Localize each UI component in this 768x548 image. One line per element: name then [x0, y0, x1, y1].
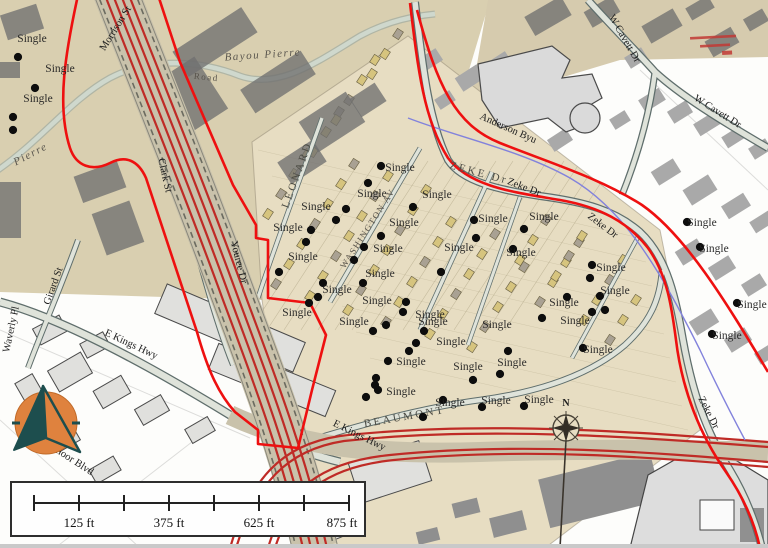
single-marker-dot — [302, 238, 310, 246]
single-marker-dot — [420, 327, 428, 335]
single-marker-dot — [364, 179, 372, 187]
single-marker-label: Single — [482, 319, 511, 331]
single-marker-label: Single — [596, 262, 625, 274]
single-marker-label: Single — [282, 307, 311, 319]
single-marker-dot — [504, 347, 512, 355]
single-marker-label: Single — [273, 222, 302, 234]
single-marker-label: Single — [17, 33, 46, 45]
single-marker-dot — [437, 268, 445, 276]
single-marker-dot — [359, 279, 367, 287]
single-marker-dot — [372, 374, 380, 382]
single-marker-dot — [305, 299, 313, 307]
single-marker-label: Single — [418, 316, 447, 328]
single-marker-dot — [405, 347, 413, 355]
single-marker-dot — [382, 321, 390, 329]
single-marker-label: Single — [737, 299, 766, 311]
building — [667, 100, 693, 124]
single-marker-label: Single — [560, 315, 589, 327]
single-marker-dot — [402, 298, 410, 306]
single-marker-dot — [371, 381, 379, 389]
single-marker-dot — [586, 274, 594, 282]
building — [609, 110, 631, 130]
single-marker-dot — [496, 370, 504, 378]
single-marker-dot — [384, 357, 392, 365]
single-marker-label: Single — [396, 356, 425, 368]
scale-label-625: 625 ft — [235, 515, 283, 531]
building — [683, 174, 718, 205]
scale-label-125: 125 ft — [55, 515, 103, 531]
single-marker-label: Single — [301, 201, 330, 213]
logo-compass-icon — [6, 378, 98, 470]
building — [0, 182, 21, 238]
page-edge — [0, 544, 768, 548]
single-marker-label: Single — [687, 217, 716, 229]
single-marker-label: Single — [322, 284, 351, 296]
single-marker-label: Single — [481, 395, 510, 407]
single-marker-label: Single — [453, 361, 482, 373]
single-marker-label: Single — [549, 297, 578, 309]
single-marker-dot — [360, 243, 368, 251]
single-marker-label: Single — [362, 295, 391, 307]
single-marker-label: Single — [339, 316, 368, 328]
single-marker-dot — [470, 216, 478, 224]
single-marker-dot — [419, 413, 427, 421]
building — [708, 255, 736, 280]
single-marker-dot — [601, 306, 609, 314]
single-marker-dot — [369, 327, 377, 335]
single-marker-dot — [377, 232, 385, 240]
single-marker-label: Single — [583, 344, 612, 356]
single-marker-dot — [538, 314, 546, 322]
building — [0, 62, 20, 78]
single-marker-label: Single — [435, 397, 464, 409]
single-marker-dot — [409, 203, 417, 211]
building — [93, 375, 131, 408]
building — [749, 211, 768, 234]
single-marker-dot — [520, 225, 528, 233]
compass-north-label: N — [562, 398, 570, 409]
single-marker-label: Single — [497, 357, 526, 369]
single-marker-dot — [314, 293, 322, 301]
single-marker-label: Single — [288, 251, 317, 263]
single-marker-dot — [307, 226, 315, 234]
building — [721, 193, 751, 219]
single-marker-label: Single — [524, 394, 553, 406]
single-marker-dot — [14, 53, 22, 61]
single-marker-dot — [332, 216, 340, 224]
scale-label-375: 375 ft — [145, 515, 193, 531]
single-marker-dot — [588, 308, 596, 316]
single-marker-label: Single — [422, 189, 451, 201]
scale-label-875: 875 ft — [318, 515, 366, 531]
single-marker-label: Single — [357, 188, 386, 200]
single-marker-dot — [588, 261, 596, 269]
single-marker-label: Single — [436, 336, 465, 348]
single-marker-label: Single — [506, 247, 535, 259]
single-marker-dot — [350, 256, 358, 264]
building — [741, 273, 767, 297]
street-label-waverly-pl: Waverly Pl — [1, 305, 21, 353]
single-marker-label: Single — [699, 243, 728, 255]
single-marker-dot — [472, 234, 480, 242]
single-marker-label: Single — [478, 213, 507, 225]
single-marker-dot — [9, 126, 17, 134]
building — [135, 395, 170, 426]
single-marker-label: Single — [373, 243, 402, 255]
scale-bar-ruler — [12, 485, 364, 515]
single-marker-label: Single — [45, 63, 74, 75]
single-marker-label: Single — [529, 211, 558, 223]
single-marker-label: Single — [386, 386, 415, 398]
single-marker-dot — [9, 113, 17, 121]
single-marker-dot — [377, 162, 385, 170]
single-marker-dot — [399, 308, 407, 316]
building — [651, 158, 682, 185]
single-marker-label: Single — [23, 93, 52, 105]
single-marker-label: Single — [389, 217, 418, 229]
single-marker-label: Single — [444, 242, 473, 254]
single-marker-dot — [275, 268, 283, 276]
single-marker-label: Single — [712, 330, 741, 342]
single-marker-dot — [342, 205, 350, 213]
map-canvas: N Morrison StBayou PierreRoadPierreClark… — [0, 0, 768, 548]
single-marker-dot — [362, 393, 370, 401]
scale-bar: 125 ft 375 ft 625 ft 875 ft — [10, 481, 366, 537]
single-marker-dot — [31, 84, 39, 92]
single-marker-label: Single — [365, 268, 394, 280]
single-marker-dot — [412, 339, 420, 347]
single-marker-dot — [469, 376, 477, 384]
map-viewport: N Morrison StBayou PierreRoadPierreClark… — [0, 0, 768, 548]
single-marker-label: Single — [385, 162, 414, 174]
single-marker-label: Single — [600, 285, 629, 297]
